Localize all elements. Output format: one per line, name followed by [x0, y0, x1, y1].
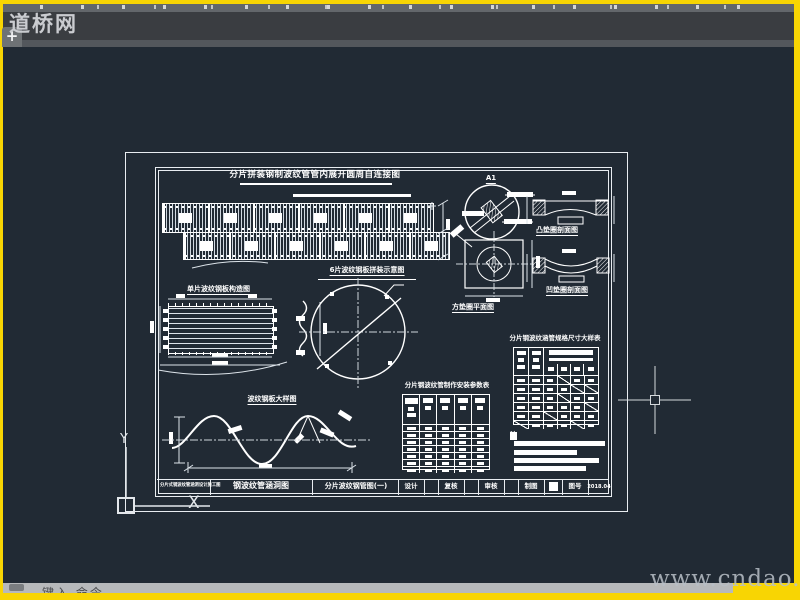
table-cell-blob	[517, 415, 525, 418]
washer-dim-blob	[536, 256, 540, 268]
table-cell	[558, 394, 572, 402]
table-cell-blob	[532, 379, 540, 382]
title-block-divider	[518, 479, 519, 495]
table-cell-blob	[561, 415, 567, 418]
a1-leader-tag	[462, 211, 484, 216]
table-header-row	[403, 395, 489, 425]
table-row	[514, 385, 598, 394]
title-block-divider	[504, 479, 505, 495]
table-cell-blob	[477, 406, 483, 410]
table-cell-blob	[425, 448, 432, 451]
table-cell	[437, 467, 454, 473]
table-cell-blob	[532, 397, 540, 400]
table-cell-blob	[459, 448, 466, 451]
table-cell	[437, 460, 454, 466]
table-cell	[585, 394, 599, 402]
plate-diagram-title-text: 单片波纹钢板构造图	[187, 285, 250, 295]
table-row	[403, 467, 489, 473]
table-cell	[472, 453, 489, 459]
plate-dim-blob	[296, 350, 305, 355]
table-cell	[585, 421, 599, 429]
table-cell-blob	[442, 406, 448, 410]
plate-bolts-top	[168, 303, 272, 306]
table-cell-blob	[574, 367, 580, 371]
table-cell-blob	[561, 388, 567, 391]
table-cell	[544, 385, 558, 393]
table-cell-blob	[532, 365, 540, 369]
washer-dim-blob	[486, 298, 500, 302]
title-block-divider	[544, 479, 545, 495]
table-cell-blob	[548, 367, 554, 371]
table-cell	[420, 446, 437, 452]
table-cell-blob	[425, 427, 432, 430]
table-cell	[472, 425, 489, 431]
table-cell	[514, 412, 529, 420]
table-cell-blob	[532, 415, 540, 418]
a1-detail-label-text: A1	[486, 174, 496, 184]
table-cell-blob	[442, 434, 449, 437]
title-block-divider	[562, 479, 563, 495]
plate-diagram-title: 单片波纹钢板构造图	[187, 286, 250, 294]
table-cell-blob	[547, 397, 553, 400]
assembly-diagram-title-text: 6片波纹钢板拼装示意图	[330, 266, 405, 276]
table-row	[514, 403, 598, 412]
title-block-set-name: 钢波纹管涵洞图	[233, 482, 289, 491]
table-cell-blob	[405, 398, 418, 404]
table-cell	[514, 376, 529, 384]
table-cell	[455, 425, 472, 431]
square-washer-title-text: 方垫圈平面图	[452, 303, 494, 313]
table-cell	[529, 348, 544, 376]
table-cell	[529, 403, 544, 411]
table-cell	[571, 403, 585, 411]
table-cell-blob	[425, 455, 432, 458]
table-cell-blob	[574, 397, 580, 400]
table-cell	[544, 348, 598, 376]
table-cell-blob	[549, 350, 593, 355]
assembly-title-underline-2	[318, 279, 416, 280]
table-row	[403, 439, 489, 446]
a1-leader-tag	[504, 219, 532, 224]
table-cell	[472, 460, 489, 466]
title-block-divider	[464, 479, 465, 495]
table-cell	[472, 395, 489, 424]
table-cell-blob	[547, 406, 553, 409]
table-cell-blob	[407, 455, 416, 458]
table-cell	[437, 425, 454, 431]
table-row	[403, 460, 489, 467]
table-cell-blob	[407, 462, 416, 465]
title-block-project: 分片式钢波纹管涵洞设计施工图	[160, 483, 220, 488]
table-cell	[544, 376, 558, 384]
toolbar-lower-strip	[3, 40, 794, 47]
table-cell-blob	[532, 388, 540, 391]
table-cell-blob	[458, 398, 468, 403]
title-block-divider	[478, 479, 479, 495]
table-cell-blob	[517, 388, 525, 391]
note-line	[514, 441, 605, 446]
title-block-divider	[438, 479, 439, 495]
table-cell-blob	[477, 434, 484, 437]
table-cell-blob	[561, 367, 567, 371]
table-cell	[571, 376, 585, 384]
table-cell	[558, 421, 572, 429]
table-cell-blob	[574, 406, 580, 409]
title-block-field-design: 设计	[405, 483, 418, 490]
table-cell	[420, 425, 437, 431]
note-line	[514, 466, 586, 471]
table-cell-blob	[549, 358, 593, 361]
table-cell-blob	[574, 379, 580, 382]
table-cell	[571, 364, 584, 376]
table-cell	[420, 453, 437, 459]
table-cell-blob	[477, 455, 484, 458]
table-cell-blob	[425, 441, 432, 444]
table-cell	[529, 412, 544, 420]
table-cell	[514, 394, 529, 402]
title-block-field-draft: 制图	[525, 483, 538, 490]
table-cell-blob	[407, 427, 416, 430]
table-cell-blob	[425, 469, 432, 472]
table-cell	[571, 421, 585, 429]
table-cell	[544, 421, 558, 429]
table-cell	[437, 453, 454, 459]
single-plate-diagram	[168, 306, 274, 354]
table-cell-blob	[588, 424, 594, 427]
table-cell-blob	[442, 455, 449, 458]
table-cell-blob	[532, 424, 540, 427]
table-cell-blob	[547, 424, 553, 427]
plate-dim-blob	[248, 294, 257, 298]
table-cell	[544, 412, 558, 420]
table-cell	[403, 467, 420, 473]
table-cell	[472, 439, 489, 445]
table-row	[403, 453, 489, 460]
table-cell-blob	[517, 365, 525, 369]
table-cell-blob	[574, 415, 580, 418]
table-cell	[529, 394, 544, 402]
table-cell-blob	[561, 406, 567, 409]
table-cell	[558, 385, 572, 393]
table-cell	[455, 395, 472, 424]
table-cell	[571, 394, 585, 402]
table-cell-blob	[459, 462, 466, 465]
table-cell	[544, 394, 558, 402]
title-block-field-check: 复核	[445, 483, 458, 490]
watermark-bottom-right: www.cndao.com	[650, 566, 800, 592]
table-cell	[437, 439, 454, 445]
section-dim-blob	[562, 191, 576, 195]
concave-washer-title-text: 凹垫圈剖面图	[546, 286, 588, 296]
table-cell	[455, 446, 472, 452]
table-cell	[437, 446, 454, 452]
table-cell-blob	[425, 434, 432, 437]
table-row	[514, 376, 598, 385]
table-cell	[571, 385, 585, 393]
table-cell-blob	[532, 351, 541, 355]
title-block-stamp-blob	[549, 482, 558, 491]
table-row	[514, 394, 598, 403]
table-cell-blob	[425, 406, 431, 410]
table-cell-blob	[477, 448, 484, 451]
table-cell-blob	[459, 427, 466, 430]
table-cell	[403, 395, 420, 424]
command-bar-icon	[9, 584, 24, 591]
table-row	[403, 432, 489, 439]
table-cell	[544, 403, 558, 411]
table-cell	[529, 421, 544, 429]
corrugated-strip-row-2	[183, 232, 450, 260]
table-cell	[514, 348, 529, 376]
right-table-title: 分片钢波纹涵管规格尺寸大样表	[510, 335, 601, 342]
table-cell-blob	[459, 469, 466, 472]
table-cell	[514, 385, 529, 393]
table-cell-blob	[588, 415, 594, 418]
table-cell-blob	[547, 388, 553, 391]
table-cell	[403, 439, 420, 445]
note-line	[514, 450, 577, 455]
a1-detail-label: A1	[486, 175, 496, 183]
table-cell-blob	[440, 398, 450, 403]
plate-bolts-right	[272, 309, 277, 351]
plate-dim-blob	[296, 316, 305, 321]
table-cell	[455, 460, 472, 466]
title-block-field-audit: 审核	[485, 483, 498, 490]
table-cell	[585, 412, 599, 420]
table-cell	[585, 376, 599, 384]
title-block-sheet-name: 分片波纹钢管图(一)	[325, 483, 387, 491]
table-subheader	[545, 364, 597, 376]
table-cell	[472, 432, 489, 438]
main-title: 分片拼装钢制波纹管管内展开圆周自连接图	[229, 171, 400, 180]
table-cell-blob	[459, 434, 466, 437]
section-dim-blob	[562, 249, 576, 253]
main-title-underline	[240, 183, 392, 185]
table-cell-blob	[517, 406, 525, 409]
table-cell	[420, 432, 437, 438]
table-cell	[545, 364, 558, 376]
table-cell	[420, 395, 437, 424]
watermark-top-left: 道桥网	[9, 8, 78, 38]
table-cell	[403, 432, 420, 438]
table-cell-blob	[588, 379, 594, 382]
table-cell-blob	[442, 448, 449, 451]
plate-bolts-left	[163, 309, 168, 351]
table-cell	[514, 403, 529, 411]
table-cell	[529, 376, 544, 384]
table-cell-blob	[561, 424, 567, 427]
table-cell	[558, 412, 572, 420]
notes-label: 注	[510, 432, 517, 440]
wave-dim-blob	[169, 432, 173, 444]
table-row	[514, 412, 598, 421]
table-cell-blob	[423, 398, 433, 403]
table-cell	[558, 364, 571, 376]
wave-detail-title: 波纹钢板大样图	[248, 396, 297, 404]
plate-dim-blob	[176, 294, 185, 298]
table-cell-blob	[475, 398, 485, 403]
title-block-divider	[424, 479, 425, 495]
table-cell	[584, 364, 597, 376]
table-cell	[558, 403, 572, 411]
table-cell-blob	[407, 469, 416, 472]
title-block-divider	[398, 479, 399, 495]
table-cell-blob	[407, 413, 416, 417]
plate-dim-blob	[323, 323, 327, 334]
plate-dim-blob	[212, 353, 228, 357]
title-block-divider	[312, 479, 313, 495]
title-block-date: 2018.04	[587, 484, 610, 490]
table-cell	[571, 412, 585, 420]
plate-dim-blob	[212, 361, 228, 365]
note-line	[514, 458, 599, 463]
table-cell-blob	[477, 441, 484, 444]
title-block-field-number: 图号	[569, 483, 582, 490]
table-cell	[403, 446, 420, 452]
command-prompt-text: 键入 命令	[42, 584, 104, 593]
table-cell-blob	[407, 448, 416, 451]
a1-leader-tag	[507, 192, 533, 197]
table-cell	[420, 460, 437, 466]
wave-detail-title-text: 波纹钢板大样图	[248, 395, 297, 405]
table-cell	[437, 395, 454, 424]
table-cell	[437, 432, 454, 438]
table-cell-blob	[547, 379, 553, 382]
mid-table-title: 分片钢波纹管制作安装参数表	[405, 382, 490, 389]
table-cell	[558, 376, 572, 384]
table-cell	[514, 421, 529, 429]
table-cell	[455, 432, 472, 438]
table-cell-blob	[532, 406, 540, 409]
table-cell-blob	[442, 441, 449, 444]
table-cell-blob	[517, 379, 525, 382]
table-cell-blob	[518, 358, 524, 362]
table-cell-blob	[533, 358, 539, 362]
table-cell	[529, 385, 544, 393]
table-cell-blob	[460, 406, 466, 410]
table-cell-blob	[425, 462, 432, 465]
table-cell-blob	[517, 397, 525, 400]
table-cell	[585, 403, 599, 411]
table-cell-blob	[588, 397, 594, 400]
right-dimension-table	[513, 347, 599, 425]
table-cell	[403, 453, 420, 459]
table-row	[514, 421, 598, 429]
app-window: + 道桥网 分片拼装钢制波纹管管内展开圆周自连接图 单片波纹钢板构造图 6片波纹…	[0, 0, 800, 600]
table-cell-blob	[517, 351, 526, 355]
table-cell-blob	[477, 462, 484, 465]
table-cell	[472, 467, 489, 473]
toolbar-band	[3, 12, 794, 40]
dimension-bar	[293, 194, 411, 197]
strip-dim-label-blob	[446, 219, 450, 230]
table-cell	[585, 385, 599, 393]
wave-dim-blob	[259, 464, 272, 468]
convex-washer-title-text: 凸垫圈剖面图	[536, 226, 578, 236]
table-cell-blob	[407, 441, 416, 444]
table-cell-blob	[477, 427, 484, 430]
mid-parameter-table	[402, 394, 490, 470]
title-block-top-line	[157, 479, 609, 480]
table-header-row	[514, 348, 598, 376]
square-washer-title: 方垫圈平面图	[452, 304, 494, 312]
command-bar[interactable]: 键入 命令	[3, 583, 733, 593]
concave-washer-title: 凹垫圈剖面图	[546, 287, 588, 295]
table-row	[403, 425, 489, 432]
table-cell	[455, 467, 472, 473]
plate-dim-blob	[150, 321, 154, 333]
table-cell-blob	[477, 469, 484, 472]
menu-remnant-marks	[40, 5, 740, 9]
table-cell-blob	[459, 455, 466, 458]
table-cell	[420, 467, 437, 473]
table-row	[403, 446, 489, 453]
corrugated-strip-row-1	[162, 203, 434, 233]
table-cell-blob	[408, 407, 414, 411]
table-cell	[420, 439, 437, 445]
table-cell-blob	[442, 427, 449, 430]
table-cell-blob	[459, 441, 466, 444]
table-cell	[472, 446, 489, 452]
table-cell-blob	[588, 367, 594, 371]
table-cell	[403, 425, 420, 431]
table-cell	[403, 460, 420, 466]
table-cell	[455, 453, 472, 459]
convex-washer-title: 凸垫圈剖面图	[536, 227, 578, 235]
table-cell-blob	[407, 434, 416, 437]
table-cell-blob	[442, 462, 449, 465]
table-cell-blob	[442, 469, 449, 472]
table-cell	[455, 439, 472, 445]
assembly-diagram-title: 6片波纹钢板拼装示意图	[330, 267, 405, 275]
